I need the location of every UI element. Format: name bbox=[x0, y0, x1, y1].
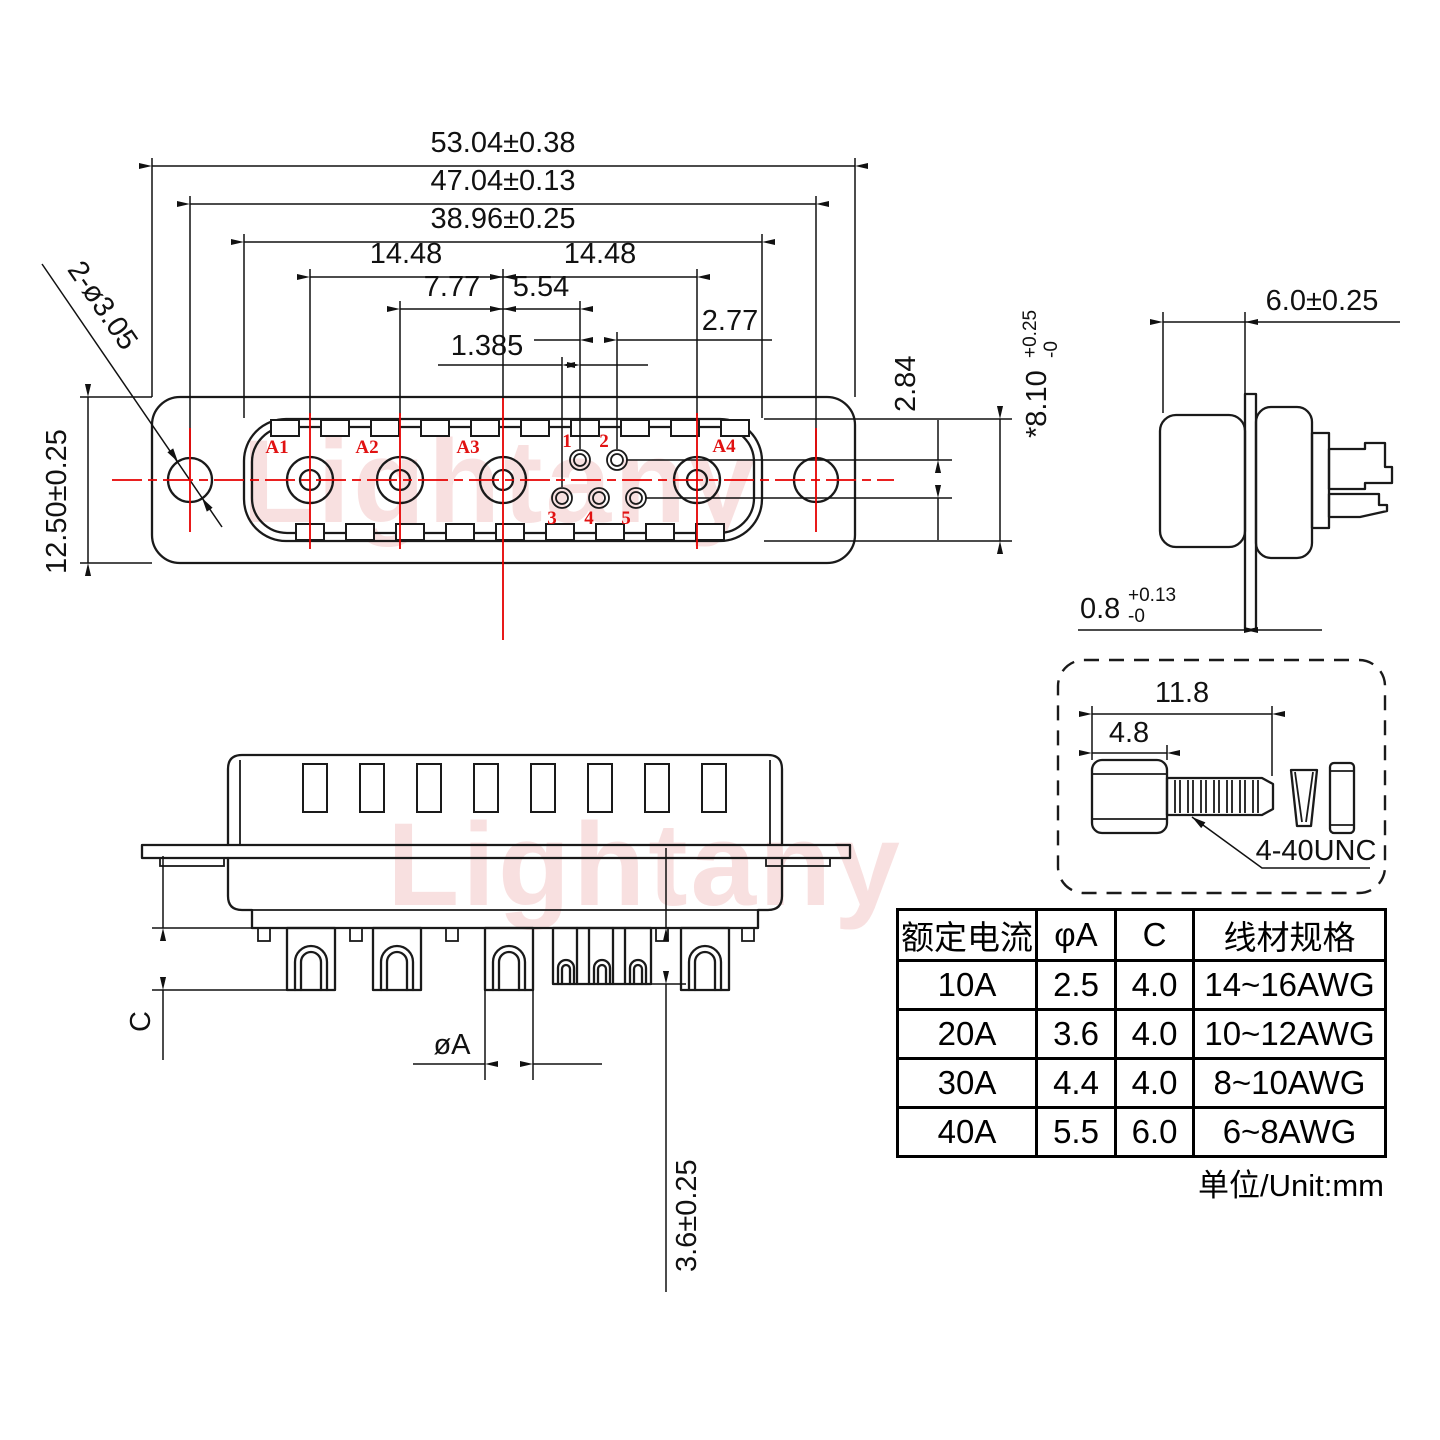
side-view: 6.0±0.25 0.8 +0.13 -0 bbox=[1078, 285, 1400, 630]
wedge-part bbox=[1291, 770, 1317, 826]
svg-text:+0.13: +0.13 bbox=[1128, 585, 1176, 606]
dim-width-holes: 47.04±0.13 bbox=[431, 165, 576, 197]
flange-notch-left bbox=[160, 858, 224, 866]
side-tab-upper bbox=[1329, 443, 1392, 489]
table-row: 10A 2.5 4.0 14~16AWG bbox=[898, 961, 1386, 1010]
svg-text:+0.25: +0.25 bbox=[1020, 310, 1041, 358]
dim-width-outer: 53.04±0.38 bbox=[431, 127, 576, 159]
watermark-bottom: Lightany bbox=[387, 799, 903, 931]
table-row: 40A 5.5 6.0 6~8AWG bbox=[898, 1108, 1386, 1157]
dim-row-gap: 2.84 bbox=[890, 356, 922, 412]
technical-drawing: Lightany Lightany bbox=[0, 0, 1440, 1440]
dim-a2-offset: 7.77 bbox=[424, 271, 480, 303]
spec-header-row: 额定电流 φA C 线材规格 bbox=[898, 910, 1386, 961]
dim-pin-pitch: 2.77 bbox=[702, 305, 758, 337]
dim-width-face: 38.96±0.25 bbox=[431, 203, 576, 235]
table-row: 20A 3.6 4.0 10~12AWG bbox=[898, 1010, 1386, 1059]
side-body bbox=[1160, 415, 1245, 547]
header-wire-gauge: 线材规格 bbox=[1194, 910, 1386, 961]
label-pin3: 3 bbox=[547, 508, 557, 529]
label-pin1: 1 bbox=[562, 431, 572, 452]
dim-pitch-left: 14.48 bbox=[370, 238, 443, 270]
dim-height: 12.50±0.25 bbox=[41, 429, 73, 574]
dim-pin-diameter: øA bbox=[433, 1029, 471, 1061]
spec-table: 额定电流 φA C 线材规格 10A 2.5 4.0 14~16AWG 20A … bbox=[896, 908, 1387, 1158]
nut-part bbox=[1330, 763, 1354, 833]
dim-flange-thickness: 0.8 +0.13 -0 bbox=[1080, 585, 1176, 627]
face-slots-bottom bbox=[296, 524, 724, 540]
dim-pin-length: 3.6±0.25 bbox=[671, 1159, 703, 1272]
svg-text:0.8: 0.8 bbox=[1080, 593, 1120, 625]
screw-threads bbox=[1175, 780, 1258, 813]
label-a3: A3 bbox=[456, 437, 479, 458]
unit-note: 单位/Unit:mm bbox=[896, 1160, 1384, 1205]
svg-text:-0: -0 bbox=[1041, 341, 1062, 358]
header-phi-a: φA bbox=[1037, 910, 1116, 961]
dim-depth: 6.0±0.25 bbox=[1266, 285, 1379, 317]
dim-pin1-offset: 5.54 bbox=[513, 271, 569, 303]
dim-mount-holes: 2-ø3.05 bbox=[61, 255, 144, 356]
drawing-page: Lightany Lightany bbox=[0, 0, 1440, 1440]
side-rear-body bbox=[1256, 407, 1312, 558]
label-pin4: 4 bbox=[584, 508, 594, 529]
dim-screw-head: 4.8 bbox=[1109, 717, 1149, 749]
solder-cups-small bbox=[553, 928, 651, 984]
label-a2: A2 bbox=[355, 437, 378, 458]
side-tab-lower bbox=[1329, 494, 1387, 517]
centerlines bbox=[112, 398, 894, 640]
side-rear-step bbox=[1312, 433, 1329, 528]
dim-screw-length: 11.8 bbox=[1155, 677, 1209, 709]
dim-pitch-right: 14.48 bbox=[564, 238, 637, 270]
label-pin5: 5 bbox=[621, 508, 631, 529]
svg-text:*8.10: *8.10 bbox=[1021, 370, 1053, 438]
svg-text:-0: -0 bbox=[1128, 606, 1145, 627]
thumbscrew bbox=[1092, 760, 1273, 833]
dim-face-height: *8.10 +0.25 -0 bbox=[1020, 310, 1062, 438]
label-pin2: 2 bbox=[599, 431, 609, 452]
screw-detail: 11.8 4.8 bbox=[1058, 660, 1385, 893]
front-view: A1 A2 A3 A4 1 2 3 4 5 53.04±0.38 47.04±0… bbox=[41, 127, 1062, 640]
table-row: 30A 4.4 4.0 8~10AWG bbox=[898, 1059, 1386, 1108]
side-flange bbox=[1245, 394, 1256, 630]
header-rated-current: 额定电流 bbox=[898, 910, 1037, 961]
label-a1: A1 bbox=[265, 437, 288, 458]
thread-label: 4-40UNC bbox=[1256, 835, 1377, 867]
solder-cups-large bbox=[287, 928, 729, 990]
label-a4: A4 bbox=[712, 436, 736, 457]
dim-row-offset: 1.385 bbox=[451, 330, 524, 362]
header-c: C bbox=[1116, 910, 1194, 961]
dim-cup-depth: C bbox=[125, 1011, 157, 1032]
